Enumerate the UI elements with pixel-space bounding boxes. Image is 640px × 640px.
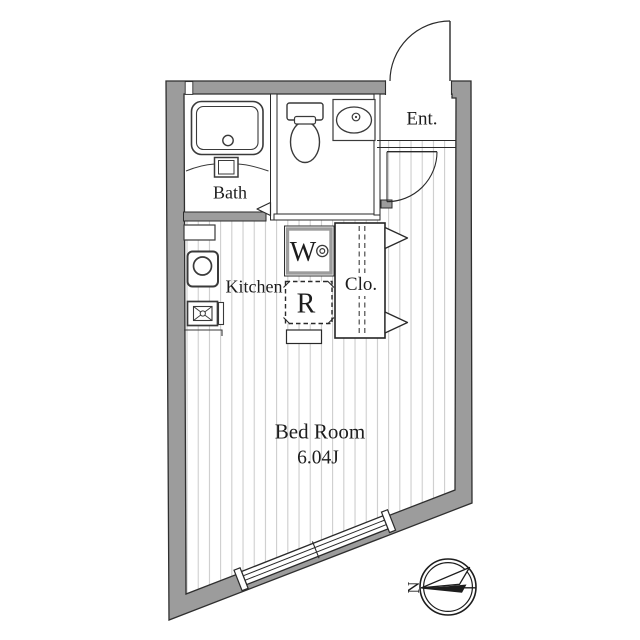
washing-machine-label: W [290, 237, 317, 268]
kitchen-counter-icon [184, 225, 215, 240]
wall-notch [185, 82, 193, 95]
toilet-icon [287, 103, 323, 163]
compass-icon: N [404, 559, 476, 615]
entrance-label: Ent. [406, 109, 437, 130]
refrigerator-label: R [297, 289, 316, 320]
kitchen-label: Kitchen [226, 277, 283, 297]
floor-plan-page: N Bath Ent. Kitchen Clo. W R Bed Room 6.… [0, 0, 640, 640]
floor-plan-svg: N Bath Ent. Kitchen Clo. W R Bed Room 6.… [0, 0, 640, 640]
bath-bottom-wall [184, 212, 267, 221]
bedroom-label: Bed Room [275, 420, 365, 444]
bath-toilet-partition [271, 94, 278, 220]
stove-icon [188, 302, 224, 326]
washbasin-icon [333, 100, 375, 141]
entrance-door-arc [390, 21, 450, 81]
kitchen-sink-icon [188, 252, 219, 287]
bedroom-area-label: 6.04J [297, 448, 339, 469]
bath-label: Bath [213, 183, 247, 203]
toilet-bottom-wall [274, 214, 380, 220]
closet-label: Clo. [345, 274, 377, 295]
compass-north-label: N [404, 581, 423, 593]
counter-ledge [287, 330, 322, 344]
entrance-door-opening [386, 80, 452, 96]
bathtub-icon [192, 102, 264, 155]
faucet-icon [317, 245, 328, 256]
